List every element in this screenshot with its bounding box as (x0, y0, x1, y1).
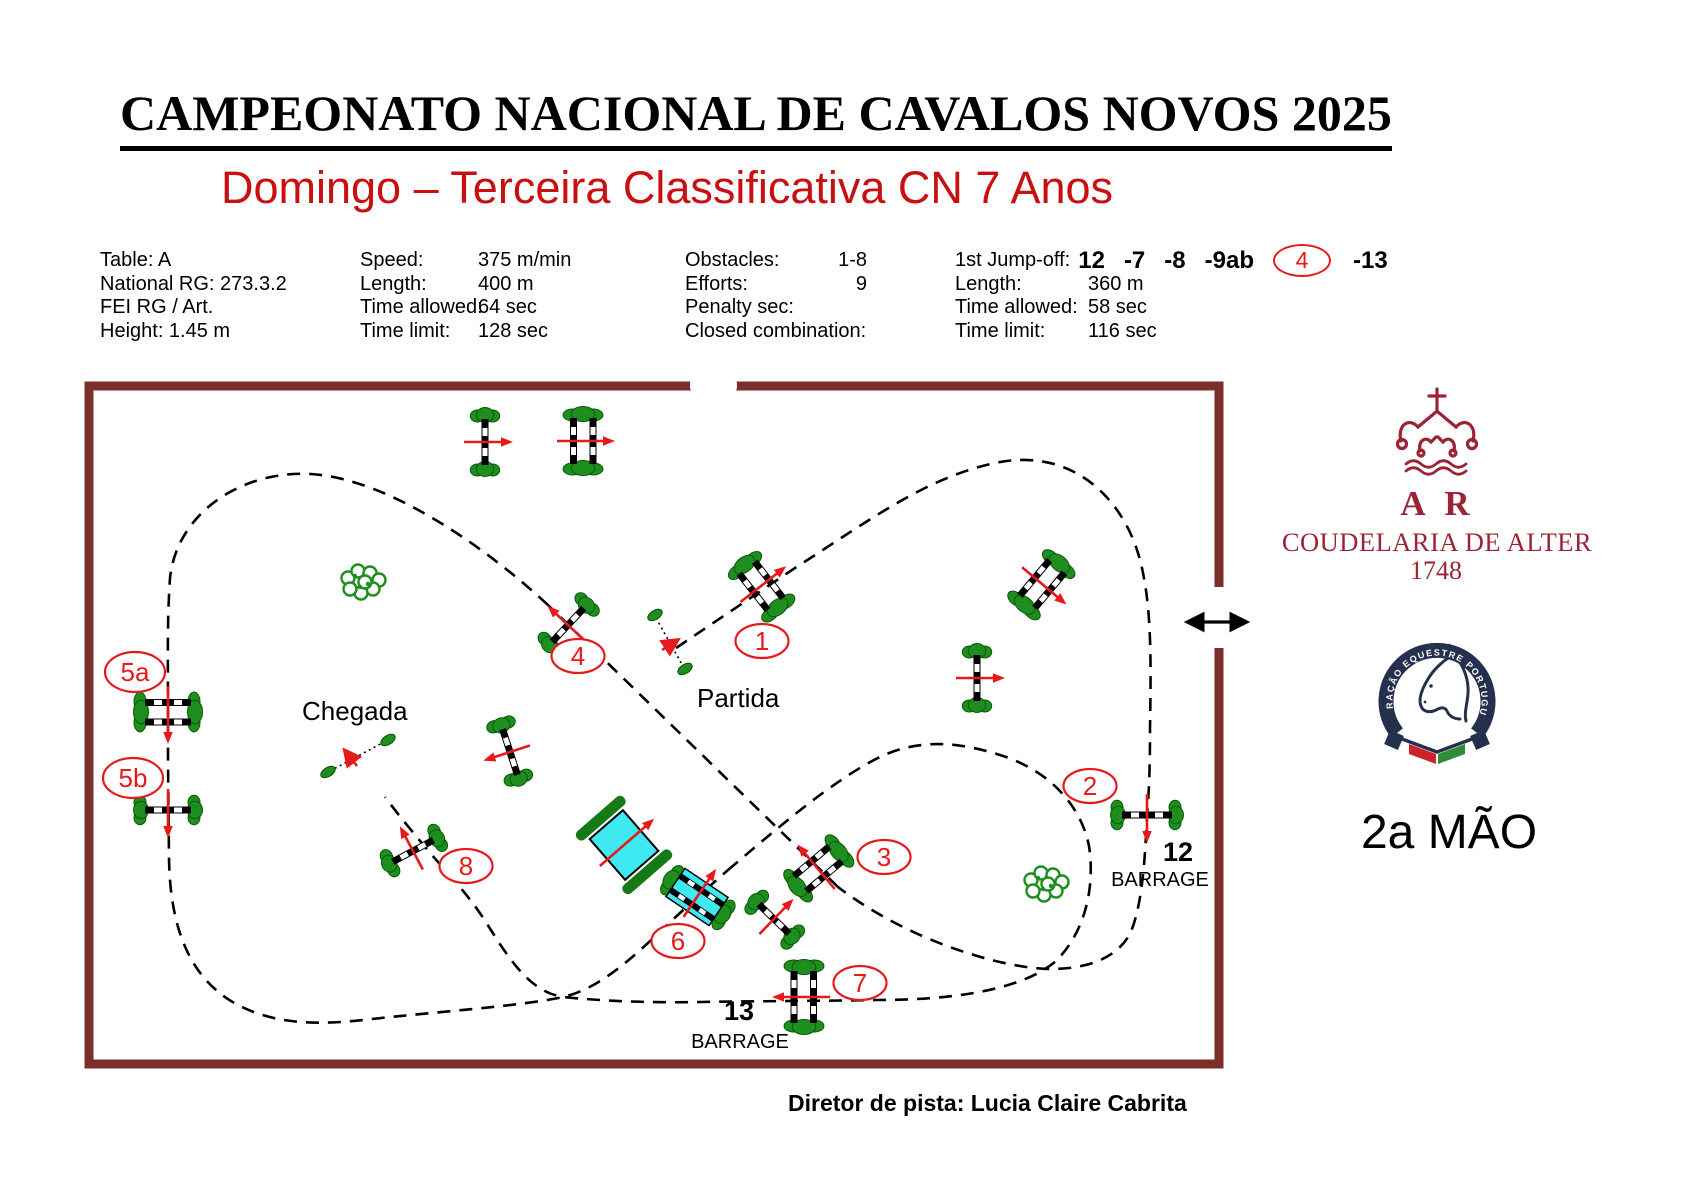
start-label: Partida (697, 683, 780, 713)
alter-name: COUDELARIA DE ALTER (1282, 527, 1592, 557)
coudelaria-alter-logo: A R COUDELARIA DE ALTER 1748 (1282, 389, 1592, 585)
arena-top-gap (690, 378, 737, 393)
hand-label: 2a MÃO (1361, 805, 1537, 859)
obstacle-number-5a: 5a (121, 657, 150, 687)
course-director: Diretor de pista: Lucia Claire Cabrita (788, 1090, 1187, 1117)
obstacle-number-8: 8 (459, 851, 473, 881)
alter-year: 1748 (1410, 556, 1462, 585)
course-design-sheet: CAMPEONATO NACIONAL DE CAVALOS NOVOS 202… (0, 0, 1683, 1190)
barrage-13-label: BARRAGE (691, 1031, 789, 1053)
barrage-12-number: 12 (1163, 837, 1193, 867)
obstacle-number-3: 3 (877, 842, 891, 872)
obstacle-number-1: 1 (755, 626, 769, 656)
course-map: 1 2 3 4 5a 5b 6 7 8 Partida Chegada 12 B… (0, 0, 1683, 1190)
obstacle-number-2: 2 (1083, 771, 1097, 801)
barrage-13-number: 13 (724, 996, 754, 1026)
barrage-12-label: BARRAGE (1111, 869, 1209, 891)
obstacle-number-4: 4 (571, 641, 585, 671)
obstacle-number-5b: 5b (119, 763, 148, 793)
finish-label: Chegada (302, 696, 408, 726)
alter-initials: A R (1400, 484, 1470, 523)
arena-border (89, 386, 1219, 1064)
alter-crown-icon (1398, 389, 1477, 474)
obstacle-number-6: 6 (671, 926, 685, 956)
obstacle-number-7: 7 (853, 968, 867, 998)
arena-entrance-gap (1211, 587, 1228, 648)
